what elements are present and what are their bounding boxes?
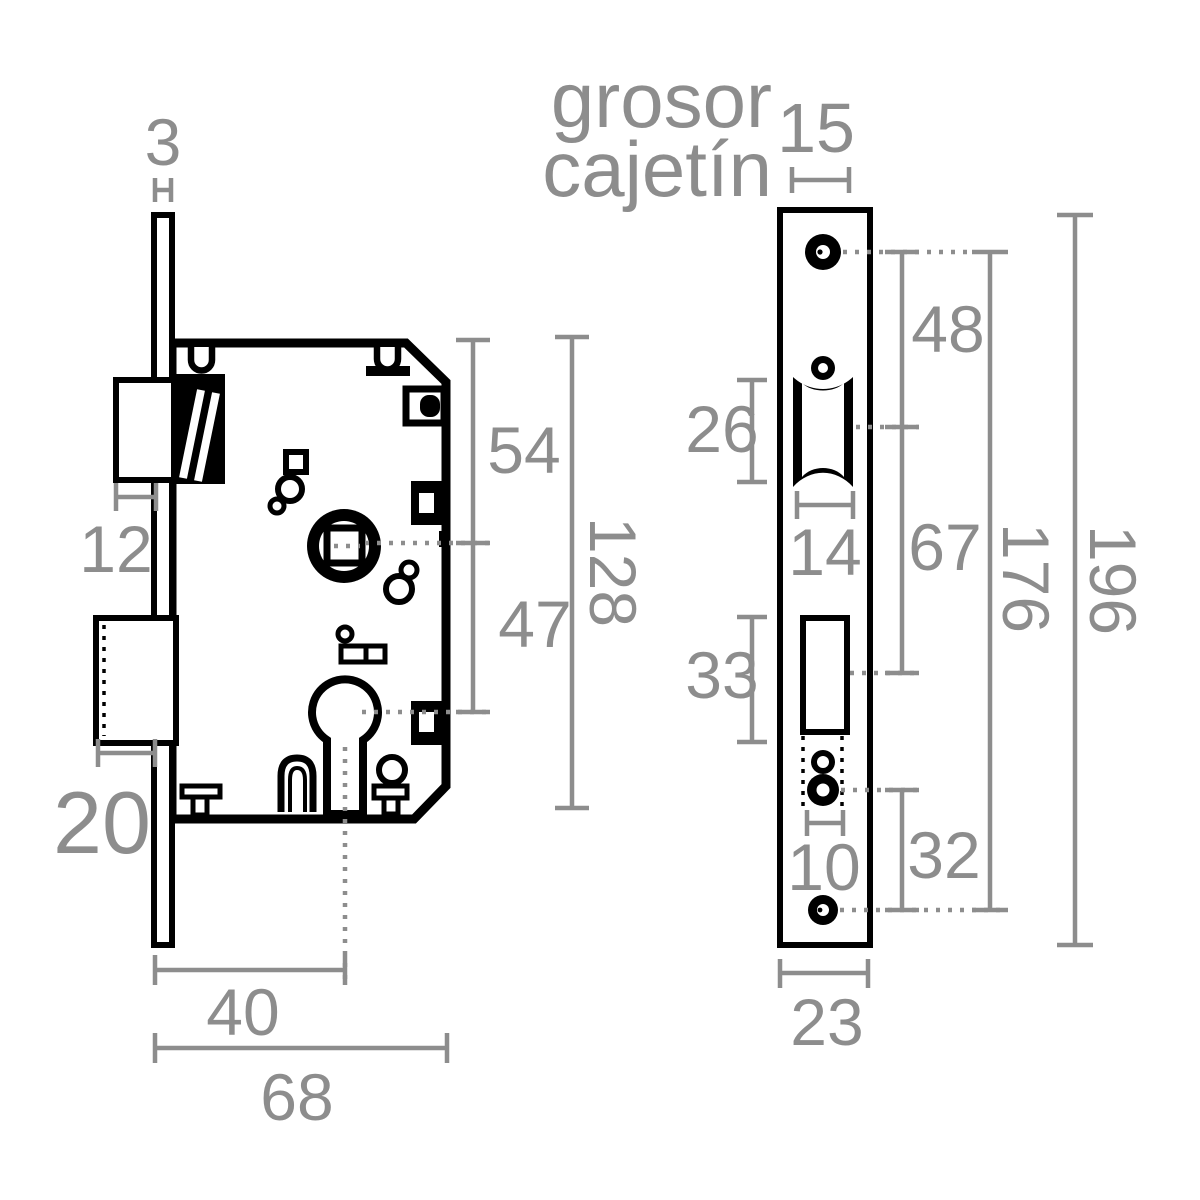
deadbolt-cutout	[803, 618, 847, 732]
top-right-post	[377, 347, 398, 370]
dim-deadbolt-projection: 20	[53, 773, 151, 872]
cylinder-screw-hole	[807, 774, 839, 806]
dim-faceplate-width: 23	[790, 985, 863, 1059]
cylinder-pin-hole	[811, 750, 835, 774]
dim-case-depth: 68	[260, 1060, 333, 1134]
dim-faceplate-height: 196	[1076, 525, 1150, 635]
dim-cylinder-to-bottom-screw: 32	[907, 818, 980, 892]
top-left-post	[191, 347, 212, 371]
dim-case-height: 128	[576, 517, 650, 627]
dim-screw-to-latch: 48	[911, 292, 984, 366]
dim-latch-projection: 12	[79, 512, 152, 586]
dim-deadbolt-cutout-height: 33	[685, 638, 758, 712]
dim-cylinder-hole-width: 10	[787, 830, 860, 904]
dim-spindle-to-cylinder: 47	[498, 587, 571, 661]
latch-mechanism	[171, 374, 225, 484]
right-notch-blob	[420, 395, 440, 417]
dim-top-to-spindle: 54	[487, 413, 560, 487]
drawing-canvas: 3 12 20 54 47 128	[0, 0, 1200, 1200]
dim-case-thickness: 15	[777, 89, 855, 167]
front-view-dimensions: 26 14 48 67 33 10	[685, 215, 1150, 1059]
dim-backset: 40	[206, 975, 279, 1049]
label-cajetin: cajetín	[542, 125, 772, 213]
lock-technical-drawing: 3 12 20 54 47 128	[0, 0, 1200, 1200]
dim-screw-spacing: 176	[989, 523, 1063, 633]
right-post-lower	[411, 701, 445, 745]
dim-faceplate-thickness: 3	[145, 105, 182, 179]
spindle-follower	[307, 509, 381, 583]
faceplate-edge	[154, 215, 172, 945]
arch-post	[281, 758, 313, 812]
right-post-upper	[411, 481, 445, 525]
dim-latch-cutout-width: 14	[788, 515, 861, 589]
latch-cutout	[793, 377, 853, 487]
top-screw-hole	[805, 234, 841, 270]
latch-pin-hole	[811, 356, 835, 380]
deadbolt	[96, 618, 176, 743]
side-view: 3 12 20 54 47 128	[53, 105, 650, 1134]
dim-latch-to-deadbolt: 67	[908, 510, 981, 584]
dim-latch-cutout-height: 26	[685, 392, 758, 466]
latch-bolt	[116, 380, 176, 480]
